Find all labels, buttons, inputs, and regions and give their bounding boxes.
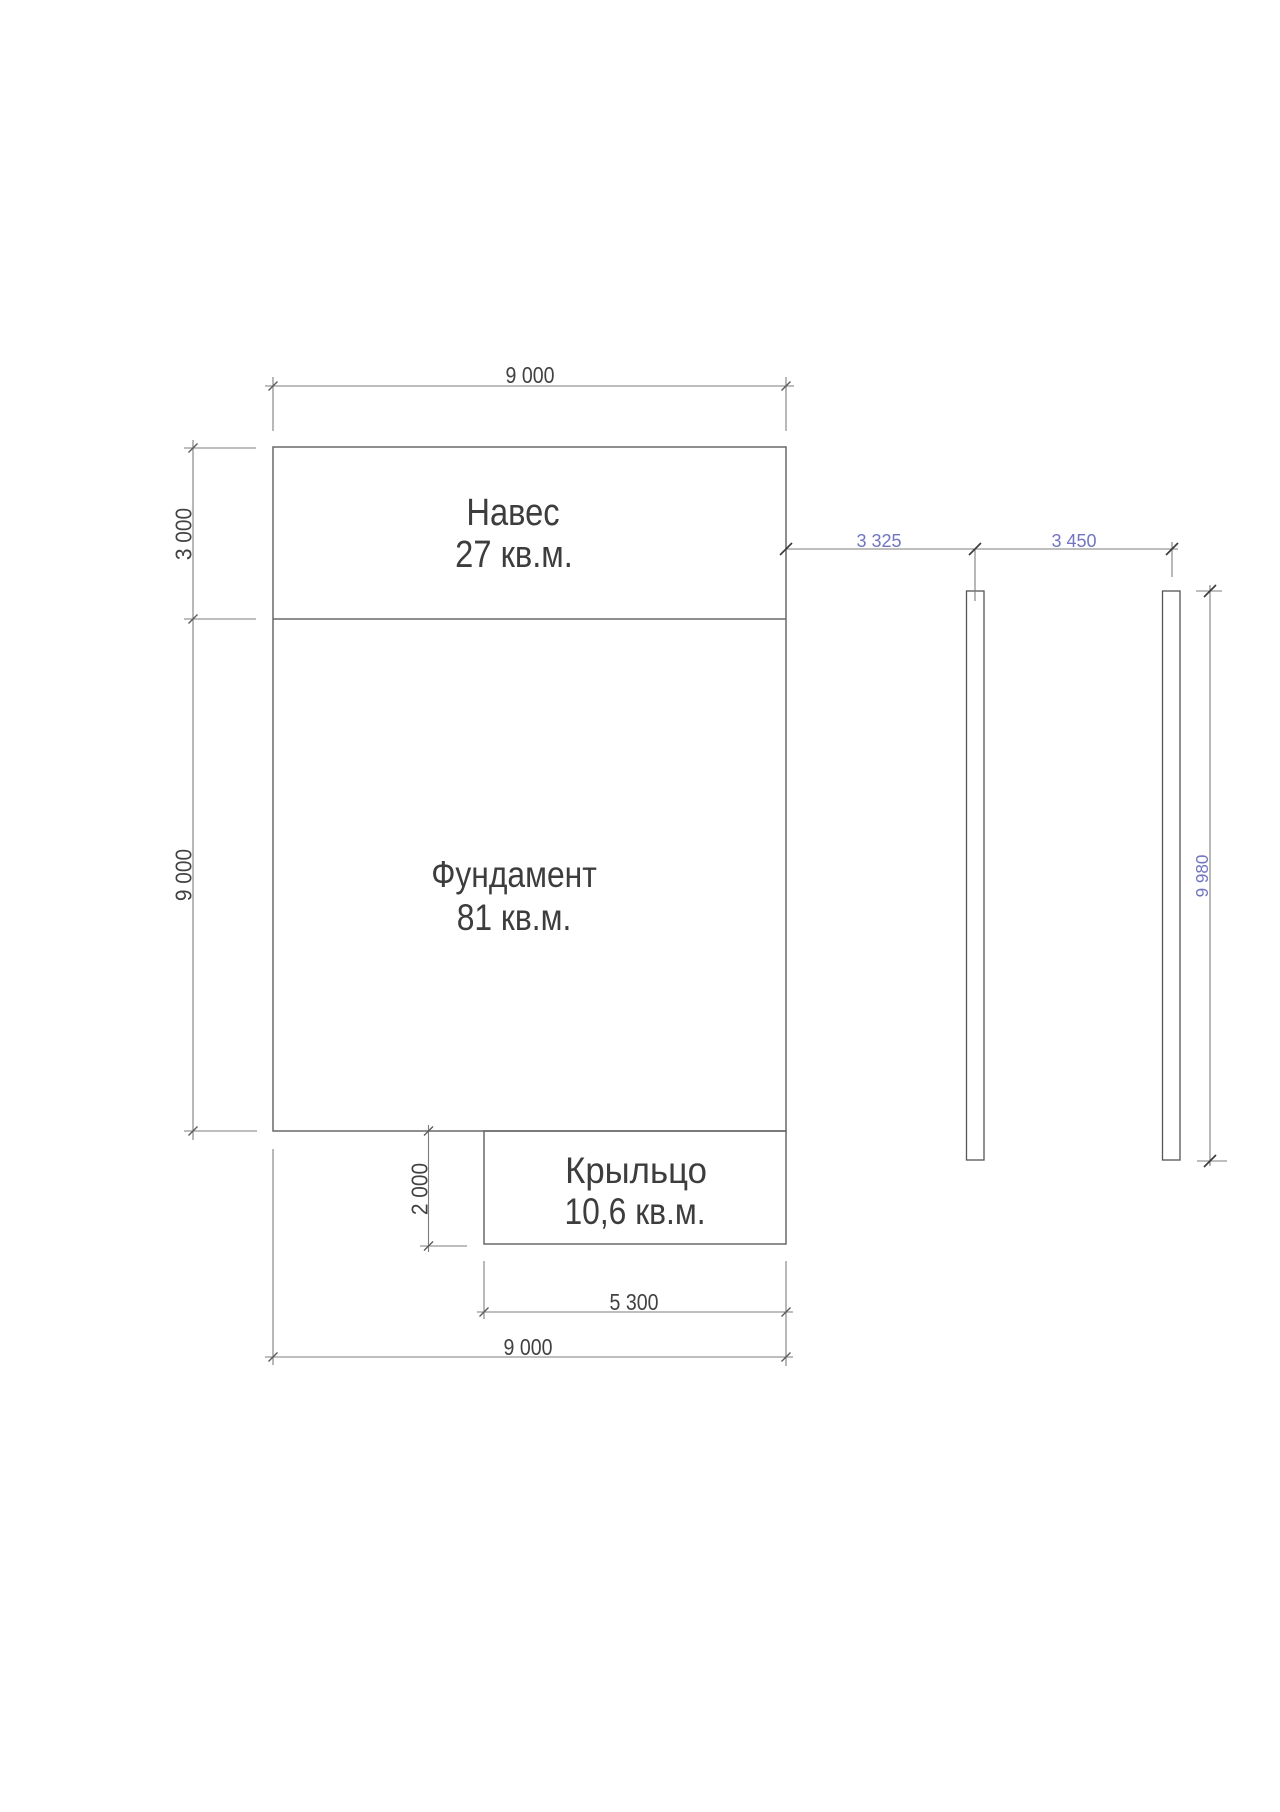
svg-text:81 кв.м.: 81 кв.м. xyxy=(457,898,572,939)
svg-text:9 000: 9 000 xyxy=(504,1335,553,1361)
svg-text:Фундамент: Фундамент xyxy=(431,855,597,896)
svg-text:3 450: 3 450 xyxy=(1051,531,1096,551)
svg-text:3 325: 3 325 xyxy=(856,531,901,551)
svg-text:9 000: 9 000 xyxy=(171,849,197,901)
svg-text:9 980: 9 980 xyxy=(1192,854,1213,897)
svg-text:5 300: 5 300 xyxy=(610,1290,659,1316)
svg-text:Навес: Навес xyxy=(466,491,559,534)
svg-text:10,6 кв.м.: 10,6 кв.м. xyxy=(564,1192,705,1233)
svg-text:9 000: 9 000 xyxy=(506,363,555,389)
svg-text:3 000: 3 000 xyxy=(171,508,197,560)
svg-text:Крыльцо: Крыльцо xyxy=(565,1150,707,1191)
svg-text:2 000: 2 000 xyxy=(407,1163,433,1215)
svg-text:27 кв.м.: 27 кв.м. xyxy=(455,533,573,576)
